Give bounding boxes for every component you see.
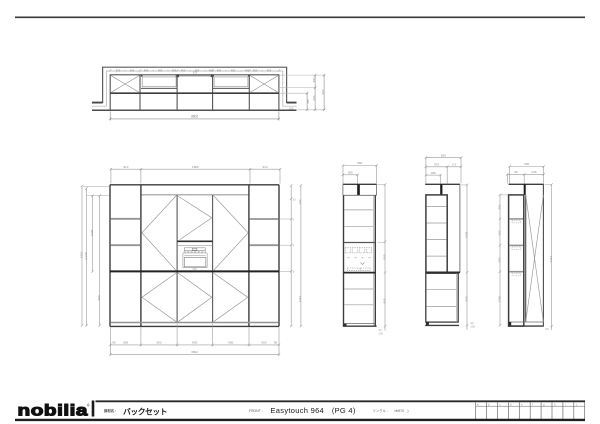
svg-text:350: 350 <box>312 77 316 82</box>
svg-text:FRONT :: FRONT : <box>249 409 263 413</box>
svg-text:®: ® <box>87 404 90 408</box>
svg-text:Easytouch 964 (PG 4): Easytouch 964 (PG 4) <box>271 406 356 415</box>
svg-text:747: 747 <box>298 199 302 204</box>
svg-text:400: 400 <box>195 68 200 72</box>
svg-text:600: 600 <box>130 68 135 72</box>
svg-text:1800: 1800 <box>192 165 199 169</box>
svg-text:3802: 3802 <box>191 350 198 354</box>
svg-text:90: 90 <box>274 341 278 345</box>
svg-text:600: 600 <box>123 341 128 345</box>
svg-text:部材名 :: 部材名 : <box>104 408 116 413</box>
svg-text:650: 650 <box>497 257 501 262</box>
svg-text:600: 600 <box>253 68 258 72</box>
svg-text:130: 130 <box>379 332 384 336</box>
svg-text:130: 130 <box>471 325 476 329</box>
svg-text:450: 450 <box>231 68 236 72</box>
svg-text:1300: 1300 <box>497 295 501 302</box>
svg-text:600: 600 <box>116 68 121 72</box>
svg-text:450: 450 <box>245 68 250 72</box>
svg-text:800: 800 <box>192 341 197 345</box>
svg-text:960: 960 <box>464 296 468 301</box>
svg-text:nobilia: nobilia <box>18 403 89 420</box>
svg-text:600: 600 <box>267 68 272 72</box>
svg-text:600: 600 <box>289 106 294 110</box>
svg-text:600: 600 <box>312 95 316 100</box>
svg-text:650: 650 <box>497 230 501 235</box>
svg-text:6: 6 <box>293 218 295 222</box>
svg-text:450: 450 <box>172 68 177 72</box>
svg-text:600: 600 <box>261 341 266 345</box>
svg-text:バックセット: バックセット <box>123 407 167 417</box>
svg-text:560: 560 <box>524 162 529 166</box>
svg-text:900: 900 <box>156 341 161 345</box>
svg-text:305: 305 <box>431 171 436 175</box>
svg-text:913: 913 <box>262 165 267 169</box>
svg-text:2310: 2310 <box>79 251 83 258</box>
svg-text:1265: 1265 <box>90 229 94 236</box>
svg-text:900: 900 <box>228 341 233 345</box>
svg-text:913: 913 <box>123 165 128 169</box>
svg-text:2310: 2310 <box>549 255 553 262</box>
svg-text:600: 600 <box>192 267 197 271</box>
svg-text:25: 25 <box>293 197 296 201</box>
svg-text:nb970 ): nb970 ) <box>395 409 409 413</box>
svg-text:60: 60 <box>471 321 474 325</box>
svg-text:950: 950 <box>321 89 325 94</box>
svg-text:560: 560 <box>441 153 446 157</box>
svg-text:960: 960 <box>382 298 386 303</box>
svg-text:6: 6 <box>293 244 295 248</box>
svg-text:960: 960 <box>97 295 101 300</box>
svg-text:90: 90 <box>112 341 116 345</box>
svg-text:375: 375 <box>434 163 439 167</box>
svg-text:1425: 1425 <box>464 231 468 238</box>
svg-text:50: 50 <box>515 170 519 174</box>
svg-text:リンクル :: リンクル : <box>373 408 388 413</box>
svg-text:245: 245 <box>531 170 536 174</box>
svg-text:450: 450 <box>144 68 149 72</box>
svg-text:60: 60 <box>546 327 549 331</box>
svg-text:60: 60 <box>379 328 382 332</box>
svg-text:3802: 3802 <box>191 115 199 119</box>
svg-text:2 310: 2 310 <box>84 252 88 260</box>
svg-text:2 5: 2 5 <box>452 163 457 167</box>
svg-text:450: 450 <box>209 68 214 72</box>
svg-text:350: 350 <box>306 99 310 104</box>
svg-text:590: 590 <box>497 204 501 209</box>
svg-text:400: 400 <box>181 68 186 72</box>
svg-text:450: 450 <box>217 68 222 72</box>
svg-text:305: 305 <box>348 171 353 175</box>
svg-text:6: 6 <box>293 270 295 274</box>
svg-text:560: 560 <box>357 161 362 165</box>
svg-text:2310: 2310 <box>298 295 302 302</box>
svg-text:590: 590 <box>382 254 386 259</box>
svg-text:450: 450 <box>158 68 163 72</box>
